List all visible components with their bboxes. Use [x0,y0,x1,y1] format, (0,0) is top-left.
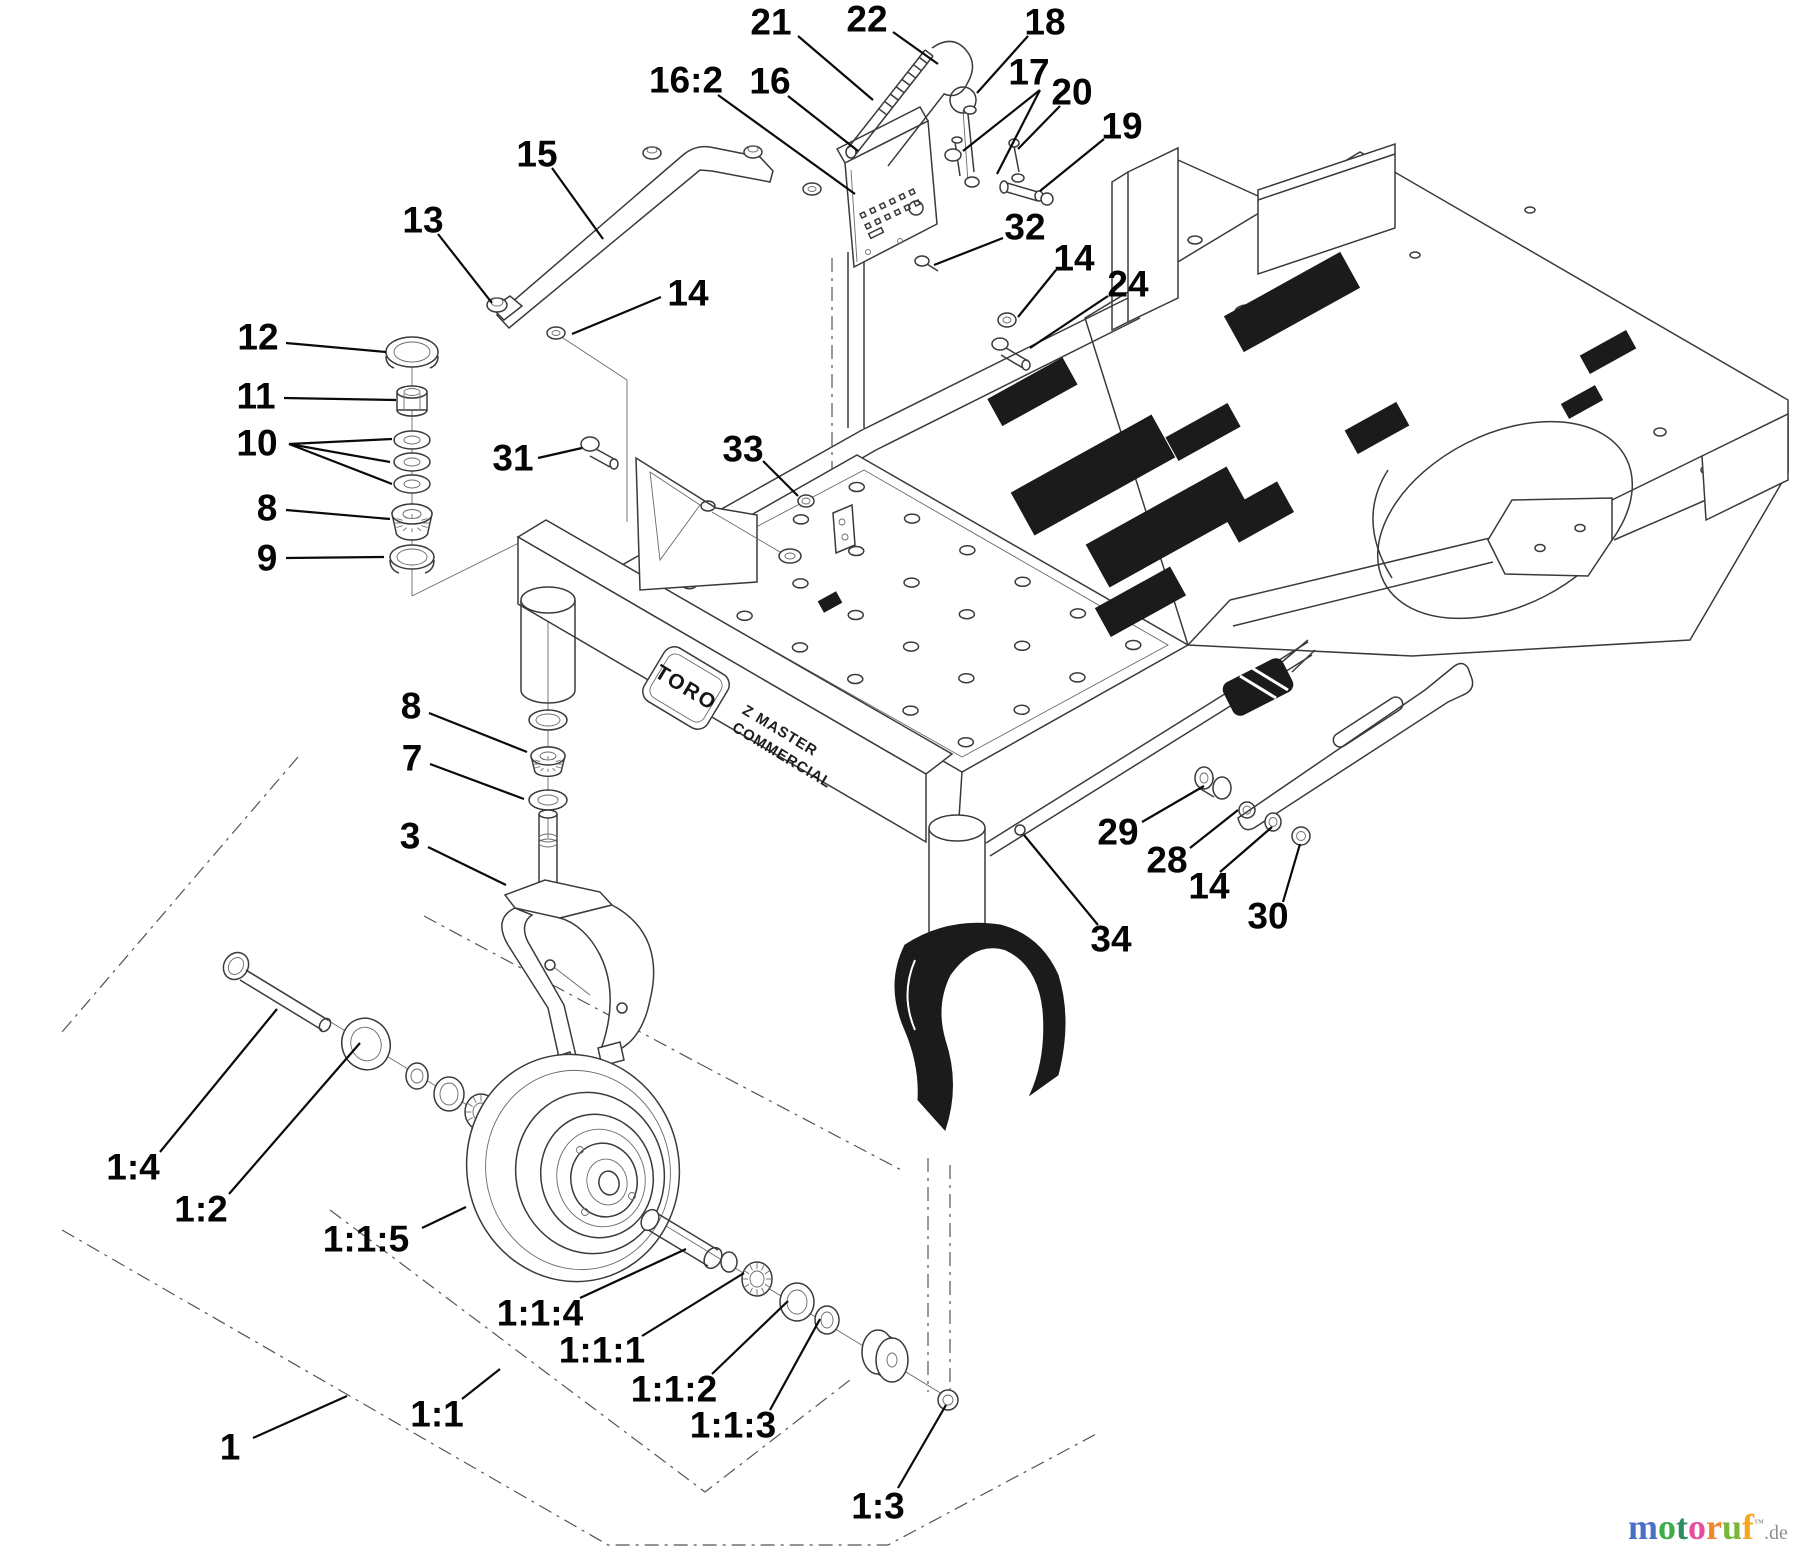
callout-label-21-0: 21 [750,2,791,43]
motoruf-letter: o [1688,1507,1706,1547]
axle-washer [721,1252,737,1272]
callout-label-13-12: 13 [402,200,443,241]
callout-leader-10 [289,444,392,484]
trademark-symbol: ™ [1754,1518,1764,1529]
callout-leader-22 [893,32,938,64]
nut-33 [798,495,814,507]
callout-layer: 21221817201916:2163214241513141211108931… [106,0,1300,1527]
arm-washer-top [803,183,821,195]
callout-leader-17 [963,90,1040,151]
callout-label-34-28: 34 [1090,919,1132,960]
callout-leader-1:1:3 [770,1319,820,1410]
callout-leader-16 [788,96,858,151]
callout-label-1:4-29: 1:4 [106,1147,160,1188]
callout-leader-1:1:2 [712,1301,788,1374]
callout-label-16:2-6: 16:2 [649,60,723,101]
callout-label-14-13: 14 [667,273,709,314]
rod-rib [919,57,927,63]
spacer-left [406,1063,428,1089]
callout-label-15-11: 15 [516,134,557,175]
motoruf-letter: u [1722,1507,1742,1547]
callout-leader-1:1:1 [642,1273,744,1336]
callout-leader-1:2 [229,1043,360,1194]
callout-label-18-2: 18 [1024,2,1065,43]
callout-leader-19 [1040,139,1104,191]
callout-leader-9 [286,557,384,558]
callout-label-32-8: 32 [1004,207,1045,248]
nut-30 [1292,827,1310,845]
callout-label-22-1: 22 [846,0,887,40]
callout-leader-3 [428,847,506,885]
callout-label-31-19: 31 [492,438,533,479]
callout-label-14-26: 14 [1188,866,1230,907]
callout-label-1:1:5-31: 1:1:5 [323,1219,409,1260]
bearing-8a [392,504,432,540]
callout-label-1-37: 1 [220,1427,241,1468]
callout-label-12-14: 12 [237,317,278,358]
motoruf-letter: f [1742,1507,1754,1547]
callout-leader-8 [429,713,527,752]
rod-rib [902,79,910,85]
callout-leader-1 [253,1396,347,1438]
rod-rib [908,72,916,78]
callout-leader-1:1:5 [422,1207,466,1228]
bolt-24-group [992,313,1030,370]
rod-rib [885,101,893,107]
step-bracket [1488,498,1612,576]
rod-rib [890,94,898,100]
callout-leader-29 [1142,786,1204,822]
rod-rib [896,87,904,93]
callout-leader-31 [538,448,582,458]
end-roller [862,1330,908,1382]
motoruf-letter: m [1628,1507,1658,1547]
washer-14c [1265,813,1281,831]
rod-rib [913,65,921,71]
callout-leader-1:3 [898,1405,946,1488]
arm-washer-14a [547,327,565,339]
callout-label-17-3: 17 [1008,52,1049,93]
callout-leader-28 [1190,810,1238,848]
callout-label-16-7: 16 [749,61,790,102]
callout-leader-34 [1024,835,1098,925]
callout-leader-12 [286,343,386,352]
callout-leader-10 [289,444,390,462]
parts-diagram-page: TORO Z MASTER COMMERCIAL [0,0,1800,1556]
callout-label-3-23: 3 [400,816,421,857]
callout-leader-13 [438,234,492,303]
bolt-31 [581,437,618,469]
callout-label-10-16: 10 [236,423,277,464]
right-caster-fork [895,923,1065,1130]
bearing-8b [531,747,565,776]
bolt-32 [915,256,938,271]
motoruf-letter: r [1706,1507,1722,1547]
callout-label-33-20: 33 [722,429,763,470]
callout-leader-11 [284,398,396,400]
race-under-tube [529,710,567,730]
callout-leader-30 [1283,844,1300,902]
race-1-1-2 [780,1283,814,1321]
motoruf-letter: t [1676,1507,1688,1547]
caster-fork-3 [502,810,654,1078]
caster-wheel [444,1033,702,1303]
callout-label-1:1:1-33: 1:1:1 [559,1330,645,1371]
callout-label-11-15: 11 [236,376,275,417]
callout-leader-33 [763,461,798,496]
callout-label-1:1:2-34: 1:1:2 [631,1369,717,1410]
rod-ribs [879,50,933,115]
cap-12 [386,337,438,368]
motoruf-domain-suffix: .de [1764,1522,1788,1544]
spindle-group [502,710,654,1078]
callout-label-8-17: 8 [257,488,278,529]
washers-10 [394,431,430,493]
exploded-parts-diagram: TORO Z MASTER COMMERCIAL [0,0,1800,1556]
callout-label-28-25: 28 [1146,840,1187,881]
seal-7 [529,790,567,810]
callout-leader-8 [286,510,390,519]
callout-label-1:1:4-32: 1:1:4 [497,1293,584,1334]
callout-leader-1:1 [462,1369,500,1399]
bearing-1-1-1 [742,1262,772,1296]
seal-ring-1-2 [335,1011,398,1076]
callout-leader-21 [798,36,873,100]
bushing-29 [1195,767,1231,799]
callout-label-1:1:3-35: 1:1:3 [690,1405,776,1446]
callout-label-1:2-30: 1:2 [174,1189,227,1230]
callout-label-29-24: 29 [1097,812,1138,853]
motoruf-watermark: motoruf™.de [1628,1504,1800,1553]
callout-leader-14 [1018,270,1056,317]
callout-label-14-9: 14 [1053,238,1095,279]
race-9 [390,545,434,573]
callout-leader-14 [572,297,661,334]
lever-arm-group [487,146,821,339]
lift-linkage [1195,640,1473,845]
callout-label-1:1-36: 1:1 [410,1394,463,1435]
axle-bolt-1-4 [218,948,333,1034]
engine-deck [1085,152,1788,656]
callout-leader-15 [552,168,603,239]
bearing-race-left [434,1077,464,1111]
callout-label-1:3-38: 1:3 [851,1486,904,1527]
callout-leader-10 [289,439,392,444]
callout-label-9-18: 9 [257,538,278,579]
axle-nut-1-3 [938,1390,958,1410]
callout-label-20-4: 20 [1051,72,1092,113]
callout-leader-32 [934,238,1003,265]
motoruf-letter: o [1658,1507,1676,1547]
callout-leader-1:4 [160,1009,277,1152]
callout-label-19-5: 19 [1101,106,1142,147]
bolt-34 [1015,825,1025,835]
motoruf-logo-text: motoruf [1628,1507,1754,1547]
callout-label-7-22: 7 [402,738,423,779]
callout-leader-16:2 [718,95,855,194]
callout-label-8-21: 8 [401,686,422,727]
callout-label-30-27: 30 [1247,896,1288,937]
callout-label-24-10: 24 [1107,264,1149,305]
rod-rib [879,109,887,115]
callout-leader-7 [430,764,524,799]
